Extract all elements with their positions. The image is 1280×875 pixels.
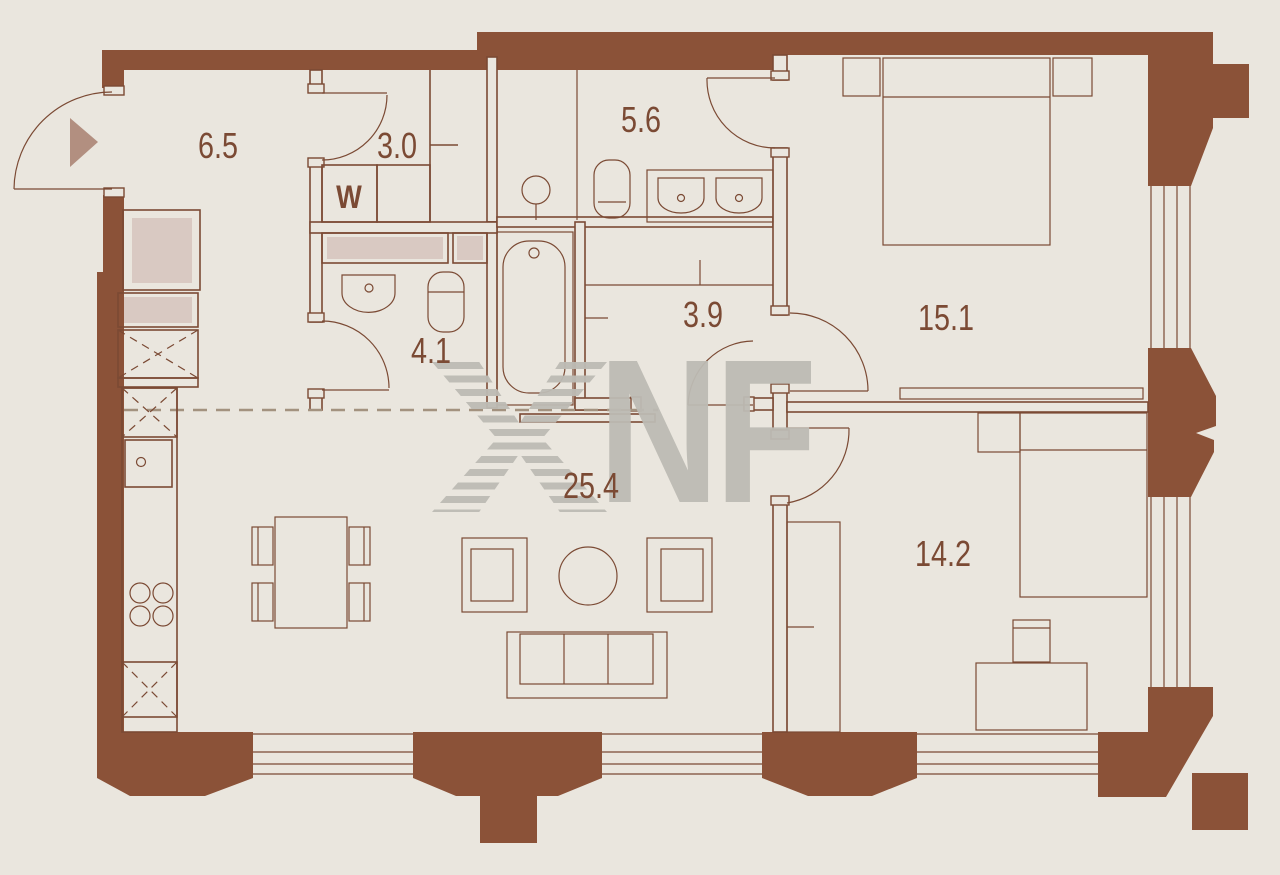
room-label-master-bedroom: 15.1	[918, 300, 974, 336]
room-label-master-bathroom: 5.6	[621, 102, 661, 138]
washer-label: W	[336, 181, 362, 213]
room-label-guest-bathroom: 4.1	[411, 333, 451, 369]
room-label-walk-in-closet: 3.9	[683, 297, 723, 333]
bathroom-counter	[322, 233, 487, 263]
kitchen-units	[118, 210, 200, 732]
master-bathroom-fixtures	[522, 70, 773, 222]
room-label-bedroom: 14.2	[915, 536, 971, 572]
closet-shelving	[585, 260, 773, 318]
living-room-furniture	[462, 538, 712, 698]
floor-plan: NF 6.5 3.0 W 5.6 4.1 3.9 15.1 25.4 14.2	[0, 0, 1280, 875]
dining-set	[252, 517, 370, 628]
room-label-hallway: 6.5	[198, 128, 238, 164]
room-label-laundry: 3.0	[377, 128, 417, 164]
master-bedroom-furniture	[843, 58, 1143, 399]
guest-bathroom-fixtures	[342, 272, 464, 332]
entrance-arrow-icon	[70, 118, 98, 167]
room-label-living-kitchen: 25.4	[563, 468, 619, 504]
watermark-letters: NF	[598, 352, 811, 512]
